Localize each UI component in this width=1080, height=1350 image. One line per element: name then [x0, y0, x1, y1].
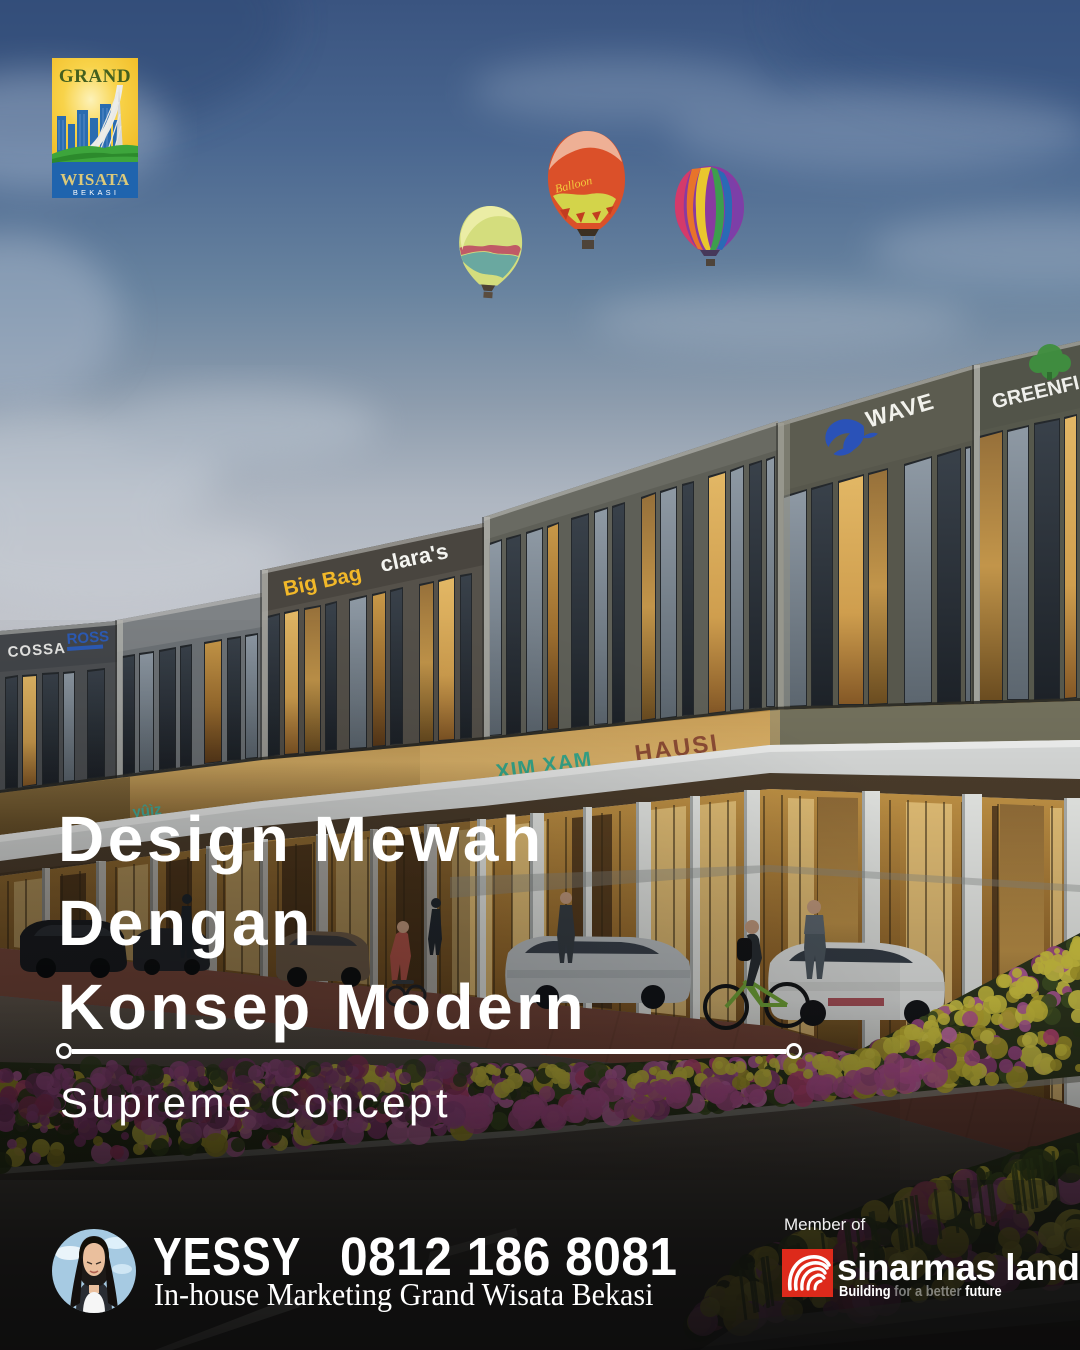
svg-text:WISATA: WISATA: [60, 170, 130, 189]
svg-text:GRAND: GRAND: [59, 66, 131, 87]
svg-text:BEKASI: BEKASI: [73, 188, 119, 197]
